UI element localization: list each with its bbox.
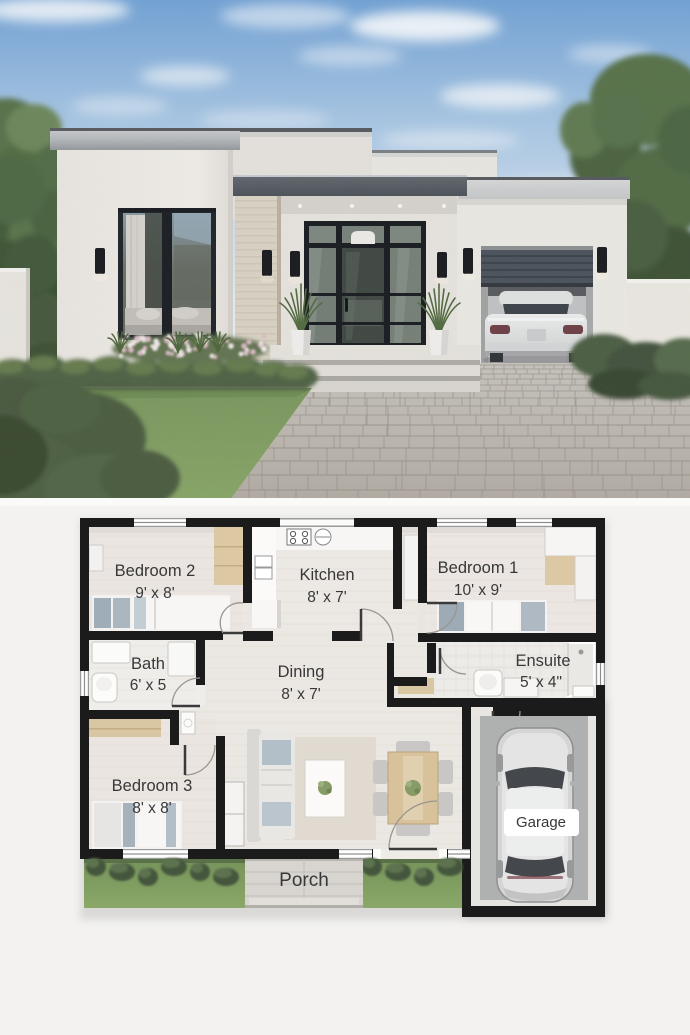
svg-text:10' x 9': 10' x 9' — [454, 582, 502, 599]
svg-text:6' x 5: 6' x 5 — [130, 677, 167, 694]
svg-text:8' x 7': 8' x 7' — [307, 589, 347, 606]
svg-text:Dining: Dining — [278, 663, 325, 681]
svg-text:Kitchen: Kitchen — [299, 566, 354, 584]
svg-text:Garage: Garage — [516, 814, 566, 831]
svg-text:Bedroom 2: Bedroom 2 — [115, 562, 196, 580]
svg-text:Bedroom 1: Bedroom 1 — [438, 559, 519, 577]
svg-text:Porch: Porch — [279, 870, 329, 891]
svg-text:Bedroom 3: Bedroom 3 — [112, 777, 193, 795]
svg-text:Ensuite: Ensuite — [515, 652, 570, 670]
svg-text:8' x 8': 8' x 8' — [132, 800, 172, 817]
svg-text:8' x 7': 8' x 7' — [281, 686, 321, 703]
svg-text:Bath: Bath — [131, 655, 165, 673]
svg-text:9' x 8': 9' x 8' — [135, 585, 175, 602]
svg-text:5' x 4": 5' x 4" — [520, 674, 562, 691]
